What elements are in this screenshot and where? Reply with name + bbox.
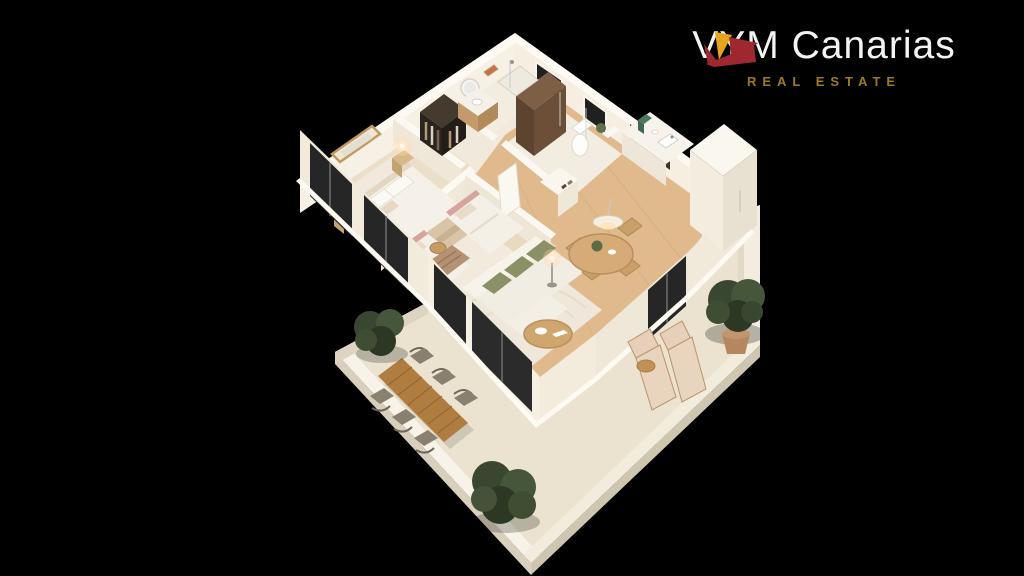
plant — [592, 241, 603, 252]
plant — [596, 123, 606, 133]
round-side-table — [637, 360, 655, 372]
round-dining-table — [569, 234, 633, 274]
round-side-table — [430, 243, 446, 254]
black-backdrop: VYM Canarias REAL ESTATE — [0, 0, 1024, 576]
coffee-table — [524, 320, 572, 348]
brand-logo: VYM Canarias REAL ESTATE — [674, 26, 974, 89]
brand-tagline: REAL ESTATE — [674, 74, 974, 89]
logo-bird-icon — [674, 26, 766, 70]
tall-cabinet — [690, 124, 757, 251]
